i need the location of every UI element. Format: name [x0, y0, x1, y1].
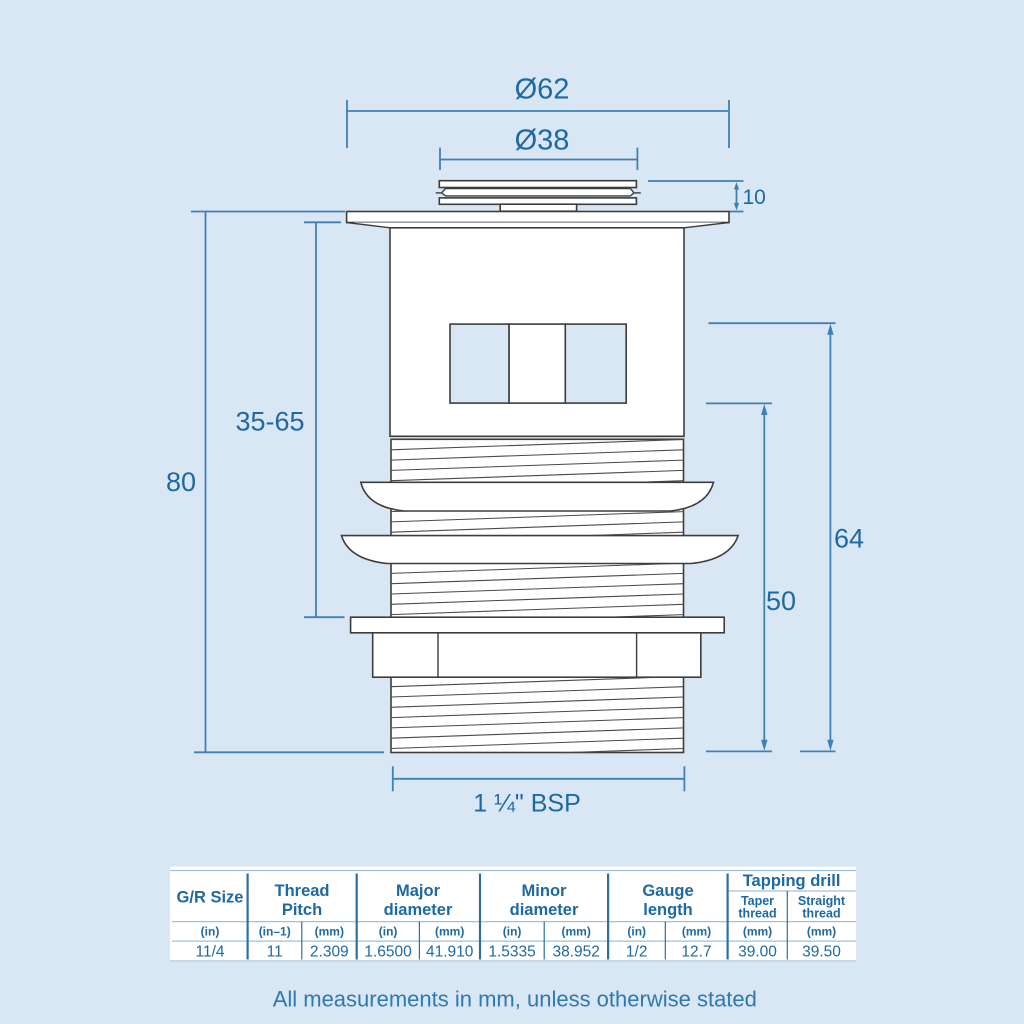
svg-text:(mm): (mm)	[682, 925, 711, 939]
svg-text:diameter: diameter	[384, 901, 453, 919]
svg-text:G/R Size: G/R Size	[177, 889, 244, 907]
svg-text:All measurements in mm, unless: All measurements in mm, unless otherwise…	[273, 987, 757, 1012]
svg-text:10: 10	[743, 186, 766, 209]
svg-text:(in): (in)	[503, 925, 522, 939]
svg-text:Minor: Minor	[522, 882, 567, 900]
svg-text:1.6500: 1.6500	[364, 944, 412, 961]
svg-text:64: 64	[834, 524, 864, 554]
svg-text:Tapping drill: Tapping drill	[743, 872, 841, 890]
svg-text:11/4: 11/4	[195, 944, 224, 961]
svg-text:(in): (in)	[627, 925, 646, 939]
svg-text:41.910: 41.910	[426, 944, 474, 961]
svg-text:39.00: 39.00	[738, 944, 777, 961]
svg-text:(in–1): (in–1)	[259, 925, 291, 939]
svg-text:Pitch: Pitch	[282, 901, 322, 919]
svg-text:(mm): (mm)	[743, 925, 772, 939]
svg-text:1.5335: 1.5335	[488, 944, 535, 961]
svg-text:1/2: 1/2	[626, 944, 648, 961]
svg-text:(in): (in)	[201, 925, 220, 939]
svg-text:11: 11	[267, 944, 283, 961]
svg-text:12.7: 12.7	[681, 944, 711, 961]
svg-text:(mm): (mm)	[435, 925, 464, 939]
svg-text:50: 50	[766, 586, 796, 616]
svg-text:(mm): (mm)	[315, 925, 344, 939]
svg-text:1 ¼" BSP: 1 ¼" BSP	[473, 790, 581, 818]
svg-text:thread: thread	[738, 907, 776, 921]
svg-text:80: 80	[166, 467, 196, 497]
svg-text:(mm): (mm)	[562, 925, 591, 939]
svg-text:Gauge: Gauge	[642, 882, 693, 900]
svg-text:Ø62: Ø62	[515, 74, 570, 106]
svg-text:38.952: 38.952	[552, 944, 599, 961]
svg-text:Ø38: Ø38	[515, 125, 570, 157]
svg-text:length: length	[643, 901, 693, 919]
svg-text:diameter: diameter	[510, 901, 579, 919]
svg-text:(in): (in)	[379, 925, 398, 939]
svg-text:(mm): (mm)	[807, 925, 836, 939]
svg-text:Thread: Thread	[274, 882, 329, 900]
svg-text:2.309: 2.309	[310, 944, 349, 961]
svg-text:39.50: 39.50	[802, 944, 841, 961]
svg-text:Major: Major	[396, 882, 441, 900]
svg-text:35-65: 35-65	[235, 407, 304, 437]
svg-text:thread: thread	[802, 907, 840, 921]
